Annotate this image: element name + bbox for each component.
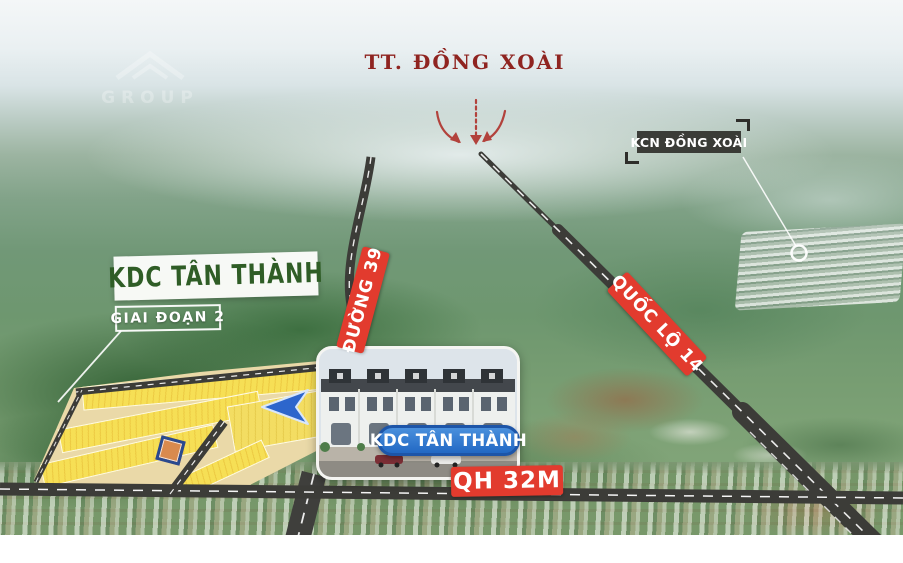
project-pill-label: KDC TÂN THÀNH	[377, 425, 520, 456]
road-label-qh-32m: QH 32M	[451, 465, 564, 497]
destination-title: TT. ĐỒNG XOÀI	[340, 50, 590, 74]
direction-arrow-icon	[258, 388, 310, 426]
bracket-corner-icon	[736, 119, 750, 131]
destination-arrows-icon	[437, 100, 505, 145]
subdivision-internal-roads	[36, 366, 334, 494]
bracket-corner-icon	[625, 152, 639, 164]
brand-watermark-text: GROUP	[70, 88, 230, 108]
project-title-text: KDC TÂN THÀNH	[108, 258, 325, 295]
project-phase-label: GIAI ĐOẠN 2	[115, 304, 221, 332]
bottom-white-bar	[0, 535, 903, 563]
townhouse-render-card	[316, 346, 520, 480]
project-title-banner: KDC TÂN THÀNH	[113, 251, 318, 300]
location-ring-icon	[792, 246, 807, 261]
industrial-zone-label: KCN ĐỒNG XOÀI	[637, 131, 741, 153]
kcn-connector-line	[743, 157, 796, 246]
townhouse-render	[319, 349, 517, 477]
aerial-location-map: GROUP TT. ĐỒNG XOÀI KCN ĐỒNG XOÀI KDC TÂ…	[0, 0, 903, 563]
brand-watermark: GROUP	[70, 48, 230, 120]
brand-logo-icon	[105, 48, 195, 82]
